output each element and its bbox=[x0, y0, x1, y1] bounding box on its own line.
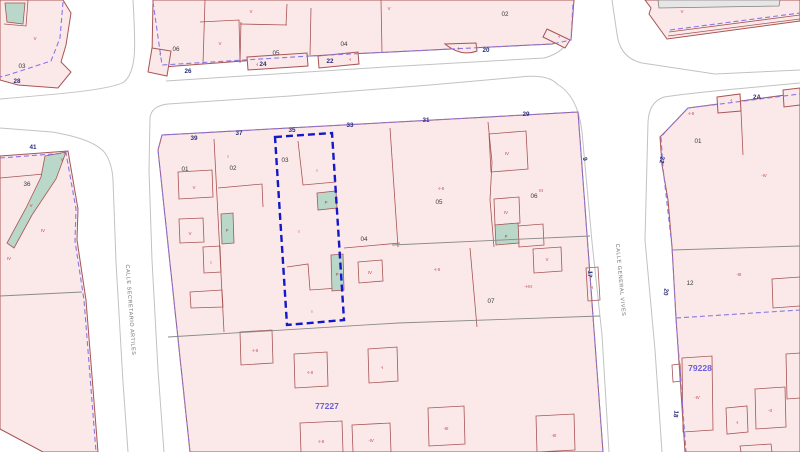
construction-label: V bbox=[34, 36, 37, 41]
construction-label: V bbox=[388, 6, 391, 11]
construction-label: -I-III bbox=[524, 284, 532, 289]
portal-number: 35 bbox=[288, 127, 296, 134]
construction-label: IV bbox=[504, 210, 508, 215]
cadastral-map-canvas[interactable]: 03 06 05 04 02 01 02 03 04 05 06 07 36 0… bbox=[0, 0, 800, 452]
construction-label: V bbox=[189, 231, 192, 236]
construction-label: -III bbox=[736, 272, 741, 277]
construction-label: P bbox=[505, 234, 508, 239]
construction-label: -II bbox=[768, 408, 772, 413]
construction-label: -I bbox=[730, 98, 733, 103]
construction-label: IV bbox=[505, 151, 509, 156]
construction-label: -IV bbox=[368, 438, 374, 443]
construction-label: V bbox=[681, 9, 684, 14]
block-north[interactable] bbox=[152, 0, 574, 67]
portal-number: 37 bbox=[235, 130, 243, 137]
construction-label: V bbox=[30, 203, 33, 208]
construction-label: IV bbox=[41, 228, 45, 233]
construction-label: P bbox=[226, 228, 229, 233]
portal-number: 33 bbox=[346, 122, 354, 129]
portal-number: 22 bbox=[326, 58, 334, 65]
portal-number: 17 bbox=[586, 270, 594, 278]
portal-number: 20 bbox=[482, 47, 490, 54]
street-name-left: CALLE SECRETARIO ARTILES bbox=[124, 264, 136, 355]
portal-number: 18 bbox=[672, 410, 680, 418]
parcel-label: 07 bbox=[487, 298, 495, 305]
construction-label: -I bbox=[736, 420, 739, 425]
portal-number: 29 bbox=[522, 111, 530, 118]
construction-label: IV bbox=[368, 270, 372, 275]
portal-number: 26 bbox=[184, 68, 192, 75]
construction-label: V bbox=[193, 185, 196, 190]
portal-number: 22 bbox=[658, 156, 666, 164]
construction-label: -I-II bbox=[318, 439, 324, 444]
patio bbox=[5, 3, 25, 24]
construction-label: I bbox=[311, 309, 312, 314]
construction-label: -I bbox=[457, 46, 460, 51]
construction-label: -I-II bbox=[688, 111, 694, 116]
parcel-label: 04 bbox=[340, 41, 348, 48]
cadastral-map-viewport[interactable]: 03 06 05 04 02 01 02 03 04 05 06 07 36 0… bbox=[0, 0, 800, 452]
construction-label: -IV bbox=[694, 395, 700, 400]
parcel-label: 03 bbox=[281, 157, 289, 164]
construction-label: -I bbox=[349, 57, 352, 62]
portal-number: 41 bbox=[29, 144, 37, 151]
construction-label: -I bbox=[558, 34, 561, 39]
construction-label: -I bbox=[256, 62, 259, 67]
construction-label: P bbox=[336, 272, 339, 277]
construction-label: V bbox=[61, 157, 64, 162]
block-east[interactable] bbox=[660, 93, 800, 452]
construction-label: -III bbox=[443, 426, 448, 431]
construction-label: III bbox=[539, 188, 543, 193]
construction-label: I bbox=[298, 229, 299, 234]
construction-label: V bbox=[219, 41, 222, 46]
construction-label: -I-II bbox=[434, 267, 440, 272]
portal-step bbox=[445, 43, 477, 53]
construction-label: -I-II bbox=[252, 348, 258, 353]
parcel-label: 05 bbox=[435, 199, 443, 206]
parcel-label: 02 bbox=[501, 11, 509, 18]
construction-label: -I bbox=[381, 365, 384, 370]
construction-label: I bbox=[316, 168, 317, 173]
block-main[interactable] bbox=[158, 112, 603, 452]
parcel-label: 06 bbox=[172, 46, 180, 53]
parcel-label: 12 bbox=[686, 280, 694, 287]
portal-step bbox=[783, 88, 800, 107]
construction-label: -I-II bbox=[438, 186, 444, 191]
construction-label: -I bbox=[159, 52, 162, 57]
portal-number: 24 bbox=[259, 61, 267, 68]
parcel-label: 04 bbox=[360, 236, 368, 243]
block-west[interactable] bbox=[0, 151, 98, 452]
parcel-label: 03 bbox=[18, 63, 26, 70]
construction-label: V bbox=[546, 257, 549, 262]
portal-number: 2A bbox=[753, 94, 762, 101]
construction-label: P bbox=[325, 200, 328, 205]
parcel-label: 05 bbox=[272, 50, 280, 57]
construction-label: -I bbox=[591, 285, 594, 290]
block-number-main: 77227 bbox=[315, 401, 339, 411]
construction-label: V bbox=[250, 9, 253, 14]
block-number-southeast: 79228 bbox=[688, 363, 712, 373]
parcel-label: 36 bbox=[23, 181, 31, 188]
construction-label: -IV bbox=[761, 173, 767, 178]
parcel-label: 06 bbox=[530, 193, 538, 200]
construction-label: -III bbox=[551, 433, 556, 438]
portal-number: 31 bbox=[422, 117, 430, 124]
street-name-right: CALLE GENERAL VIVES bbox=[614, 244, 626, 317]
portal-number: 20 bbox=[662, 288, 670, 296]
city-blocks bbox=[0, 0, 800, 452]
construction-label: I bbox=[210, 260, 211, 265]
portal-number: 39 bbox=[190, 135, 198, 142]
parcel-label: 01 bbox=[694, 138, 702, 145]
construction-label: -I-II bbox=[307, 370, 313, 375]
portal-number: 28 bbox=[13, 78, 21, 85]
parcel-label: 01 bbox=[181, 166, 189, 173]
construction-label: I bbox=[227, 154, 228, 159]
construction-label: IV bbox=[7, 256, 11, 261]
parcel-label: 02 bbox=[229, 165, 237, 172]
